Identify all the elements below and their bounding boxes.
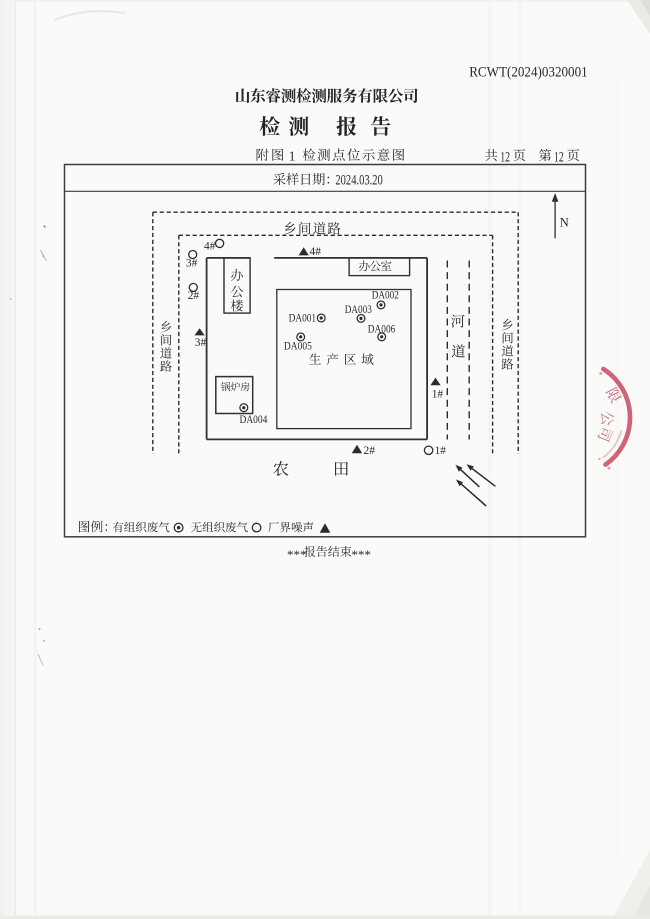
svg-text:3#: 3# — [186, 258, 198, 270]
svg-text:1: 1 — [289, 148, 296, 163]
svg-text:DA005: DA005 — [284, 341, 312, 353]
svg-text:1#: 1# — [432, 388, 444, 400]
svg-text:4#: 4# — [204, 240, 216, 252]
svg-text:12: 12 — [554, 150, 564, 166]
svg-text:N: N — [560, 215, 569, 229]
svg-text:4#: 4# — [310, 246, 322, 258]
svg-text:DA004: DA004 — [240, 414, 268, 426]
svg-text:DA003: DA003 — [345, 304, 372, 316]
svg-text:2#: 2# — [188, 290, 200, 302]
svg-text:RCWT(2024)0320001: RCWT(2024)0320001 — [469, 64, 588, 81]
svg-text:DA002: DA002 — [372, 290, 399, 302]
svg-text:1#: 1# — [435, 445, 447, 457]
svg-text:2024.03.20: 2024.03.20 — [335, 172, 382, 188]
svg-text:DA006: DA006 — [368, 324, 396, 336]
svg-text:2#: 2# — [364, 445, 376, 457]
svg-text:***: *** — [287, 547, 307, 562]
svg-text:DA001: DA001 — [289, 313, 317, 325]
svg-text:***: *** — [351, 547, 371, 562]
svg-text:12: 12 — [500, 150, 510, 166]
svg-text:3#: 3# — [195, 337, 207, 349]
